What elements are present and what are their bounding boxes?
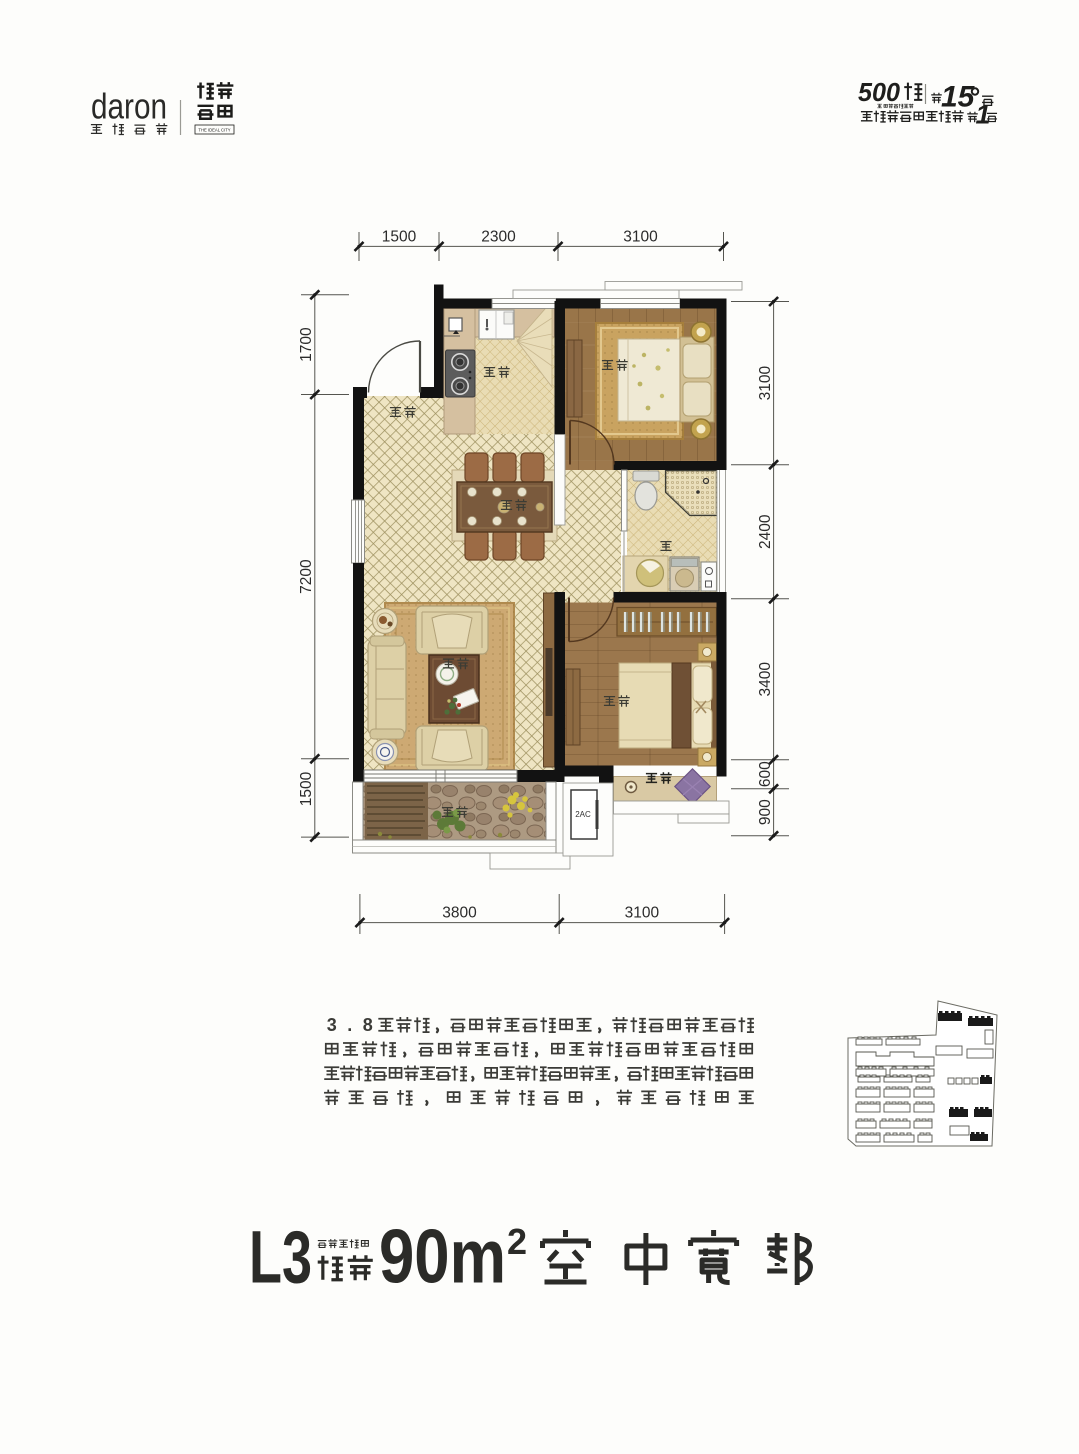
svg-text:2: 2 [507, 1221, 527, 1262]
svg-text:THE IDEAL CITY: THE IDEAL CITY [198, 128, 230, 133]
svg-text:1500: 1500 [298, 771, 315, 806]
svg-text:3100: 3100 [625, 905, 660, 922]
svg-text:3100: 3100 [757, 365, 774, 400]
svg-text:2300: 2300 [481, 229, 516, 246]
svg-text:1: 1 [976, 100, 991, 130]
svg-text:2AC: 2AC [575, 810, 591, 819]
svg-text:500: 500 [858, 77, 901, 107]
svg-text:2400: 2400 [757, 514, 774, 549]
svg-text:daron: daron [91, 86, 167, 127]
svg-text:3: 3 [327, 1015, 337, 1035]
svg-text:1500: 1500 [382, 229, 417, 246]
svg-text:3400: 3400 [757, 662, 774, 697]
svg-text:3800: 3800 [442, 905, 477, 922]
svg-text:600: 600 [757, 761, 774, 787]
svg-text:3100: 3100 [623, 229, 658, 246]
svg-text:900: 900 [757, 799, 774, 825]
svg-text:1700: 1700 [298, 327, 315, 362]
svg-text:.: . [347, 1015, 352, 1035]
svg-text:90m: 90m [379, 1215, 506, 1300]
svg-text:15: 15 [941, 81, 976, 114]
svg-text:7200: 7200 [298, 559, 315, 594]
svg-text:L3: L3 [249, 1216, 312, 1299]
svg-text:8: 8 [363, 1015, 373, 1035]
